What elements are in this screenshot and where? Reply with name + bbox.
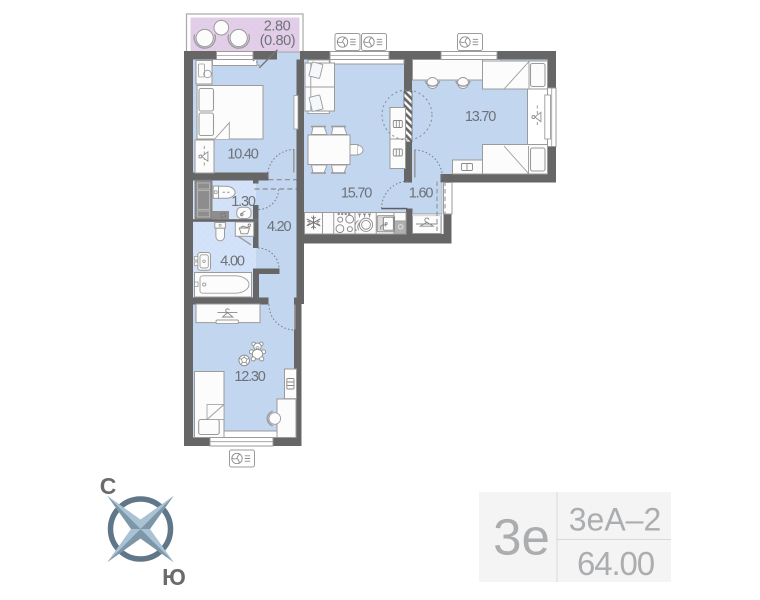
svg-text:13.70: 13.70: [465, 109, 496, 125]
svg-text:15.70: 15.70: [341, 186, 372, 202]
svg-text:12.30: 12.30: [234, 369, 265, 385]
svg-text:1.30: 1.30: [231, 194, 256, 210]
svg-text:4.20: 4.20: [267, 219, 292, 235]
svg-text:64.00: 64.00: [577, 545, 655, 582]
svg-text:3е: 3е: [493, 509, 550, 566]
svg-text:4.00: 4.00: [220, 254, 245, 270]
svg-text:3еА–2: 3еА–2: [569, 502, 662, 538]
svg-text:1.60: 1.60: [409, 186, 434, 202]
svg-text:С: С: [100, 473, 117, 499]
svg-text:(0.80): (0.80): [260, 33, 295, 49]
svg-text:10.40: 10.40: [227, 147, 258, 163]
svg-text:Ю: Ю: [162, 564, 186, 590]
